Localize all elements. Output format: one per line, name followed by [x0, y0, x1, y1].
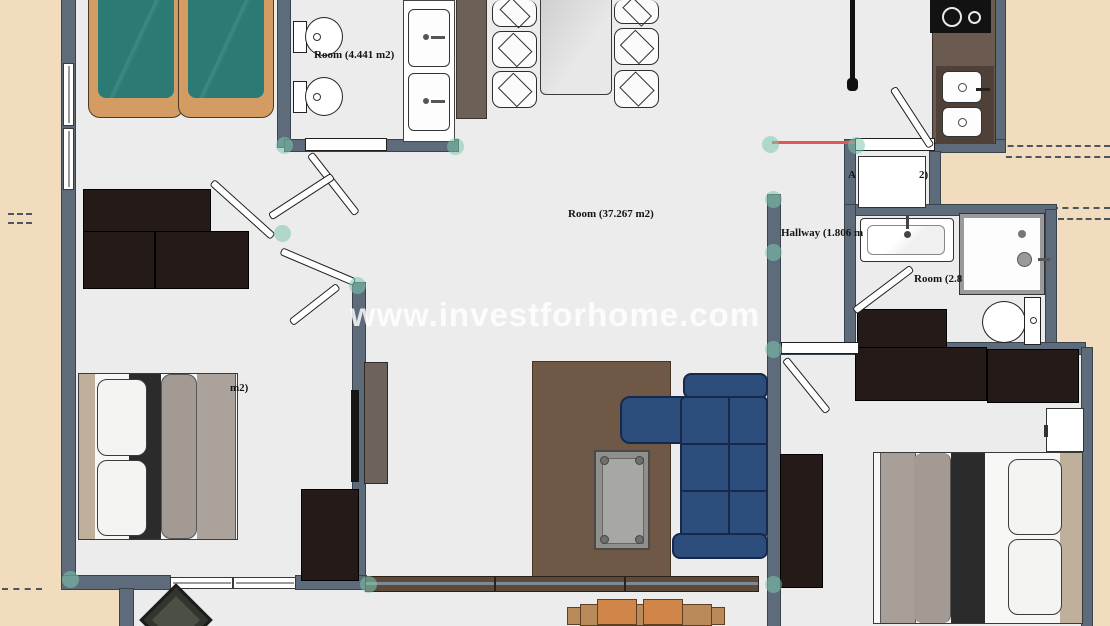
snap-dot [765, 191, 782, 208]
floor-lamp [850, 0, 855, 84]
tv-cabinet [781, 455, 822, 587]
sofa-seats [680, 396, 768, 538]
nightstand [1046, 408, 1084, 452]
bed-single-2 [178, 0, 274, 118]
vanity-cabinet [403, 0, 455, 142]
snap-dot [765, 244, 782, 261]
room-label-bathroom-top: Room (4.441 m2) [314, 49, 394, 61]
window-left-upper [63, 63, 74, 126]
sideboard [365, 363, 387, 483]
tv-cabinet [302, 490, 358, 580]
wall-balcony-divider [120, 589, 133, 626]
door-leaf [279, 247, 356, 286]
exterior-mid-right [940, 143, 1110, 213]
tall-cabinet [457, 0, 486, 118]
snap-dot [349, 277, 366, 294]
dining-chair [492, 31, 537, 68]
tv-panel [351, 390, 359, 482]
dashed-line [1052, 207, 1110, 209]
wardrobe [84, 190, 210, 232]
dining-chair [614, 70, 659, 108]
room-label-bedroom-bl: m2) [230, 382, 248, 394]
floor-plan: Room Room (4.441 m2) [0, 0, 1110, 626]
room-label-living: Room (37.267 m2) [568, 208, 654, 220]
door-leaf [782, 356, 831, 414]
dashed-line [2, 588, 42, 590]
snap-dot [762, 136, 779, 153]
snap-dot [848, 137, 865, 154]
snap-dot [765, 341, 782, 358]
wall-kitchen-right [995, 0, 1005, 148]
washing-machine [858, 156, 926, 208]
snap-dot [765, 576, 782, 593]
door-leaf [268, 173, 335, 221]
dining-chair [492, 0, 537, 27]
bed-double-left [78, 373, 238, 540]
wardrobe [156, 232, 248, 288]
balcony-plant [139, 583, 213, 626]
dashed-line [8, 213, 32, 215]
snap-dot [447, 138, 464, 155]
dashed-line [1006, 156, 1110, 158]
snap-dot [276, 137, 293, 154]
wardrobe [988, 350, 1078, 402]
shower [960, 214, 1044, 294]
balcony-bench [580, 604, 712, 626]
room-label-utility-a: A [848, 169, 856, 181]
window-bottom-b [233, 577, 296, 589]
wardrobe [856, 348, 986, 400]
exterior-top-right [995, 0, 1110, 150]
bathroom-vanity [860, 218, 954, 262]
coffee-table [594, 450, 650, 550]
room-label-utility-b: 2) [919, 169, 928, 181]
dining-chair [492, 71, 537, 108]
wall-utility-right [930, 152, 940, 212]
dashed-line [1058, 218, 1110, 220]
red-opening-line [772, 141, 856, 144]
snap-dot [62, 571, 79, 588]
wardrobe [84, 232, 154, 288]
dining-table [540, 0, 612, 95]
snap-dot [274, 225, 291, 242]
watermark: www.investforhome.com [0, 296, 1110, 334]
door-leaf [209, 179, 275, 240]
bed-single-1 [88, 0, 184, 118]
wall-bedroom2-right [1082, 348, 1092, 626]
wall-bedroom1-bath [278, 0, 290, 147]
room-label-bathroom-right: Room (2.8 [914, 273, 962, 285]
cooktop [930, 0, 991, 33]
dining-chair [614, 0, 659, 24]
dashed-line [998, 145, 1110, 147]
dining-chair [614, 28, 659, 65]
floor-lamp-base [847, 78, 858, 91]
room-label-hallway: Hallway (1.806 m [781, 227, 863, 239]
door-bathroom-top [305, 138, 387, 151]
window-sill-living [366, 577, 758, 591]
kitchen-sink-unit [936, 66, 994, 144]
toilet-bowl [305, 77, 343, 116]
exterior-bottom-left [0, 585, 120, 626]
dashed-line [8, 222, 32, 224]
door-bedroom2 [781, 342, 859, 354]
window-left-lower [63, 128, 74, 190]
sofa-arm [672, 533, 768, 559]
bed-double-right [873, 452, 1083, 624]
snap-dot [360, 576, 377, 593]
